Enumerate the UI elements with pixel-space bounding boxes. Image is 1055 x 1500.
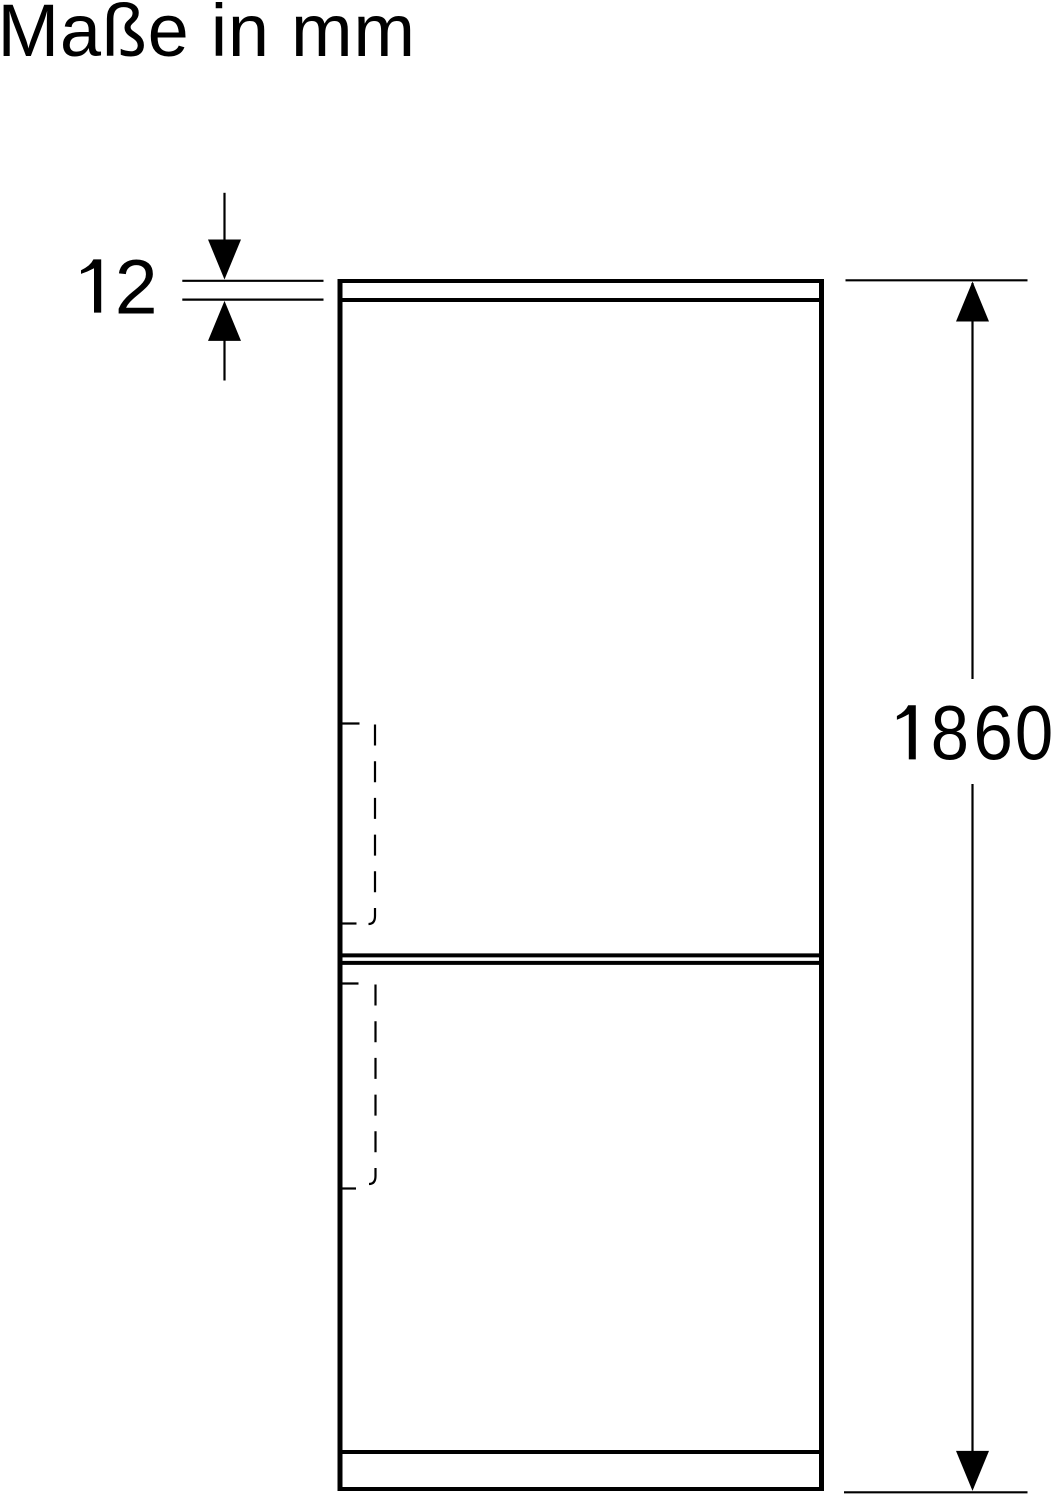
svg-text:0: 0 (1015, 691, 1053, 776)
svg-text:2: 2 (115, 244, 158, 330)
svg-text:6: 6 (973, 690, 1013, 776)
svg-text:8: 8 (931, 691, 969, 776)
svg-text:Maße in mm: Maße in mm (0, 0, 416, 72)
